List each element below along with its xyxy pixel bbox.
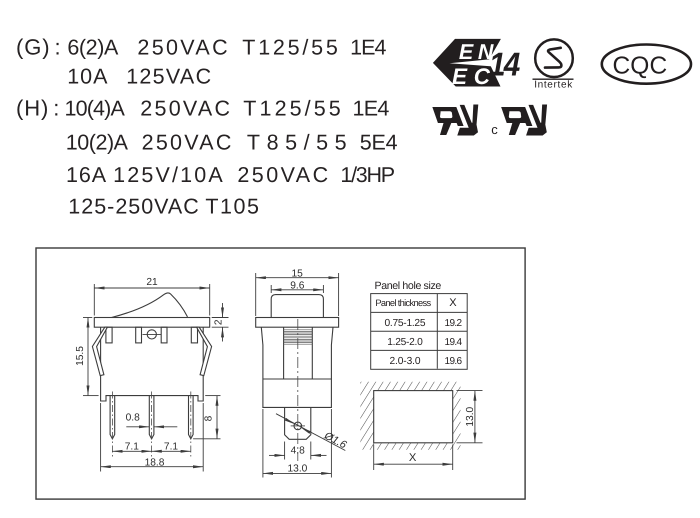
svg-text:13.0: 13.0 bbox=[465, 406, 476, 426]
svg-text:10A125VAC: 10A125VAC bbox=[67, 65, 212, 89]
svg-text:15: 15 bbox=[292, 269, 304, 280]
svg-text:19.4: 19.4 bbox=[445, 337, 463, 348]
svg-text:7.1: 7.1 bbox=[125, 442, 139, 453]
svg-text:16A125V/10A250VAC1/3HP: 16A125V/10A250VAC1/3HP bbox=[66, 163, 396, 187]
svg-text:8: 8 bbox=[204, 415, 215, 421]
svg-text:6(2)A250VACT125/551E4: 6(2)A250VACT125/551E4 bbox=[67, 36, 387, 60]
svg-text:(G):: (G): bbox=[16, 35, 61, 60]
svg-text:Panel thickness: Panel thickness bbox=[375, 298, 431, 308]
svg-text:2.0-3.0: 2.0-3.0 bbox=[390, 356, 421, 367]
svg-text:0.75-1.25: 0.75-1.25 bbox=[385, 318, 426, 329]
svg-text:2: 2 bbox=[213, 319, 224, 325]
svg-text:X: X bbox=[409, 452, 417, 464]
svg-text:21: 21 bbox=[146, 277, 158, 288]
svg-text:Ø1.6: Ø1.6 bbox=[321, 429, 348, 451]
svg-text:X: X bbox=[449, 297, 457, 309]
svg-text:Panel hole size: Panel hole size bbox=[375, 280, 442, 292]
svg-text:15.5: 15.5 bbox=[75, 346, 86, 366]
svg-text:19.2: 19.2 bbox=[445, 318, 463, 329]
svg-text:4.8: 4.8 bbox=[291, 446, 305, 457]
svg-text:c: c bbox=[491, 122, 498, 137]
svg-text:10(4)A250VACT125/551E4: 10(4)A250VACT125/551E4 bbox=[65, 97, 391, 121]
svg-text:18.8: 18.8 bbox=[145, 458, 165, 469]
svg-text:CQC: CQC bbox=[612, 52, 667, 79]
svg-text:(H):: (H): bbox=[16, 96, 60, 121]
svg-text:0.8: 0.8 bbox=[126, 412, 140, 423]
svg-text:13.0: 13.0 bbox=[287, 464, 307, 475]
svg-text:19.6: 19.6 bbox=[445, 356, 463, 367]
svg-text:Intertek: Intertek bbox=[534, 79, 573, 90]
svg-text:125-250VACT105: 125-250VACT105 bbox=[68, 194, 259, 218]
svg-text:14: 14 bbox=[489, 45, 520, 82]
svg-text:7.1: 7.1 bbox=[164, 442, 178, 453]
svg-text:9.6: 9.6 bbox=[290, 281, 304, 292]
svg-text:10(2)A250VACT85/555E4: 10(2)A250VACT85/555E4 bbox=[66, 131, 399, 155]
svg-text:1.25-2.0: 1.25-2.0 bbox=[387, 337, 423, 348]
